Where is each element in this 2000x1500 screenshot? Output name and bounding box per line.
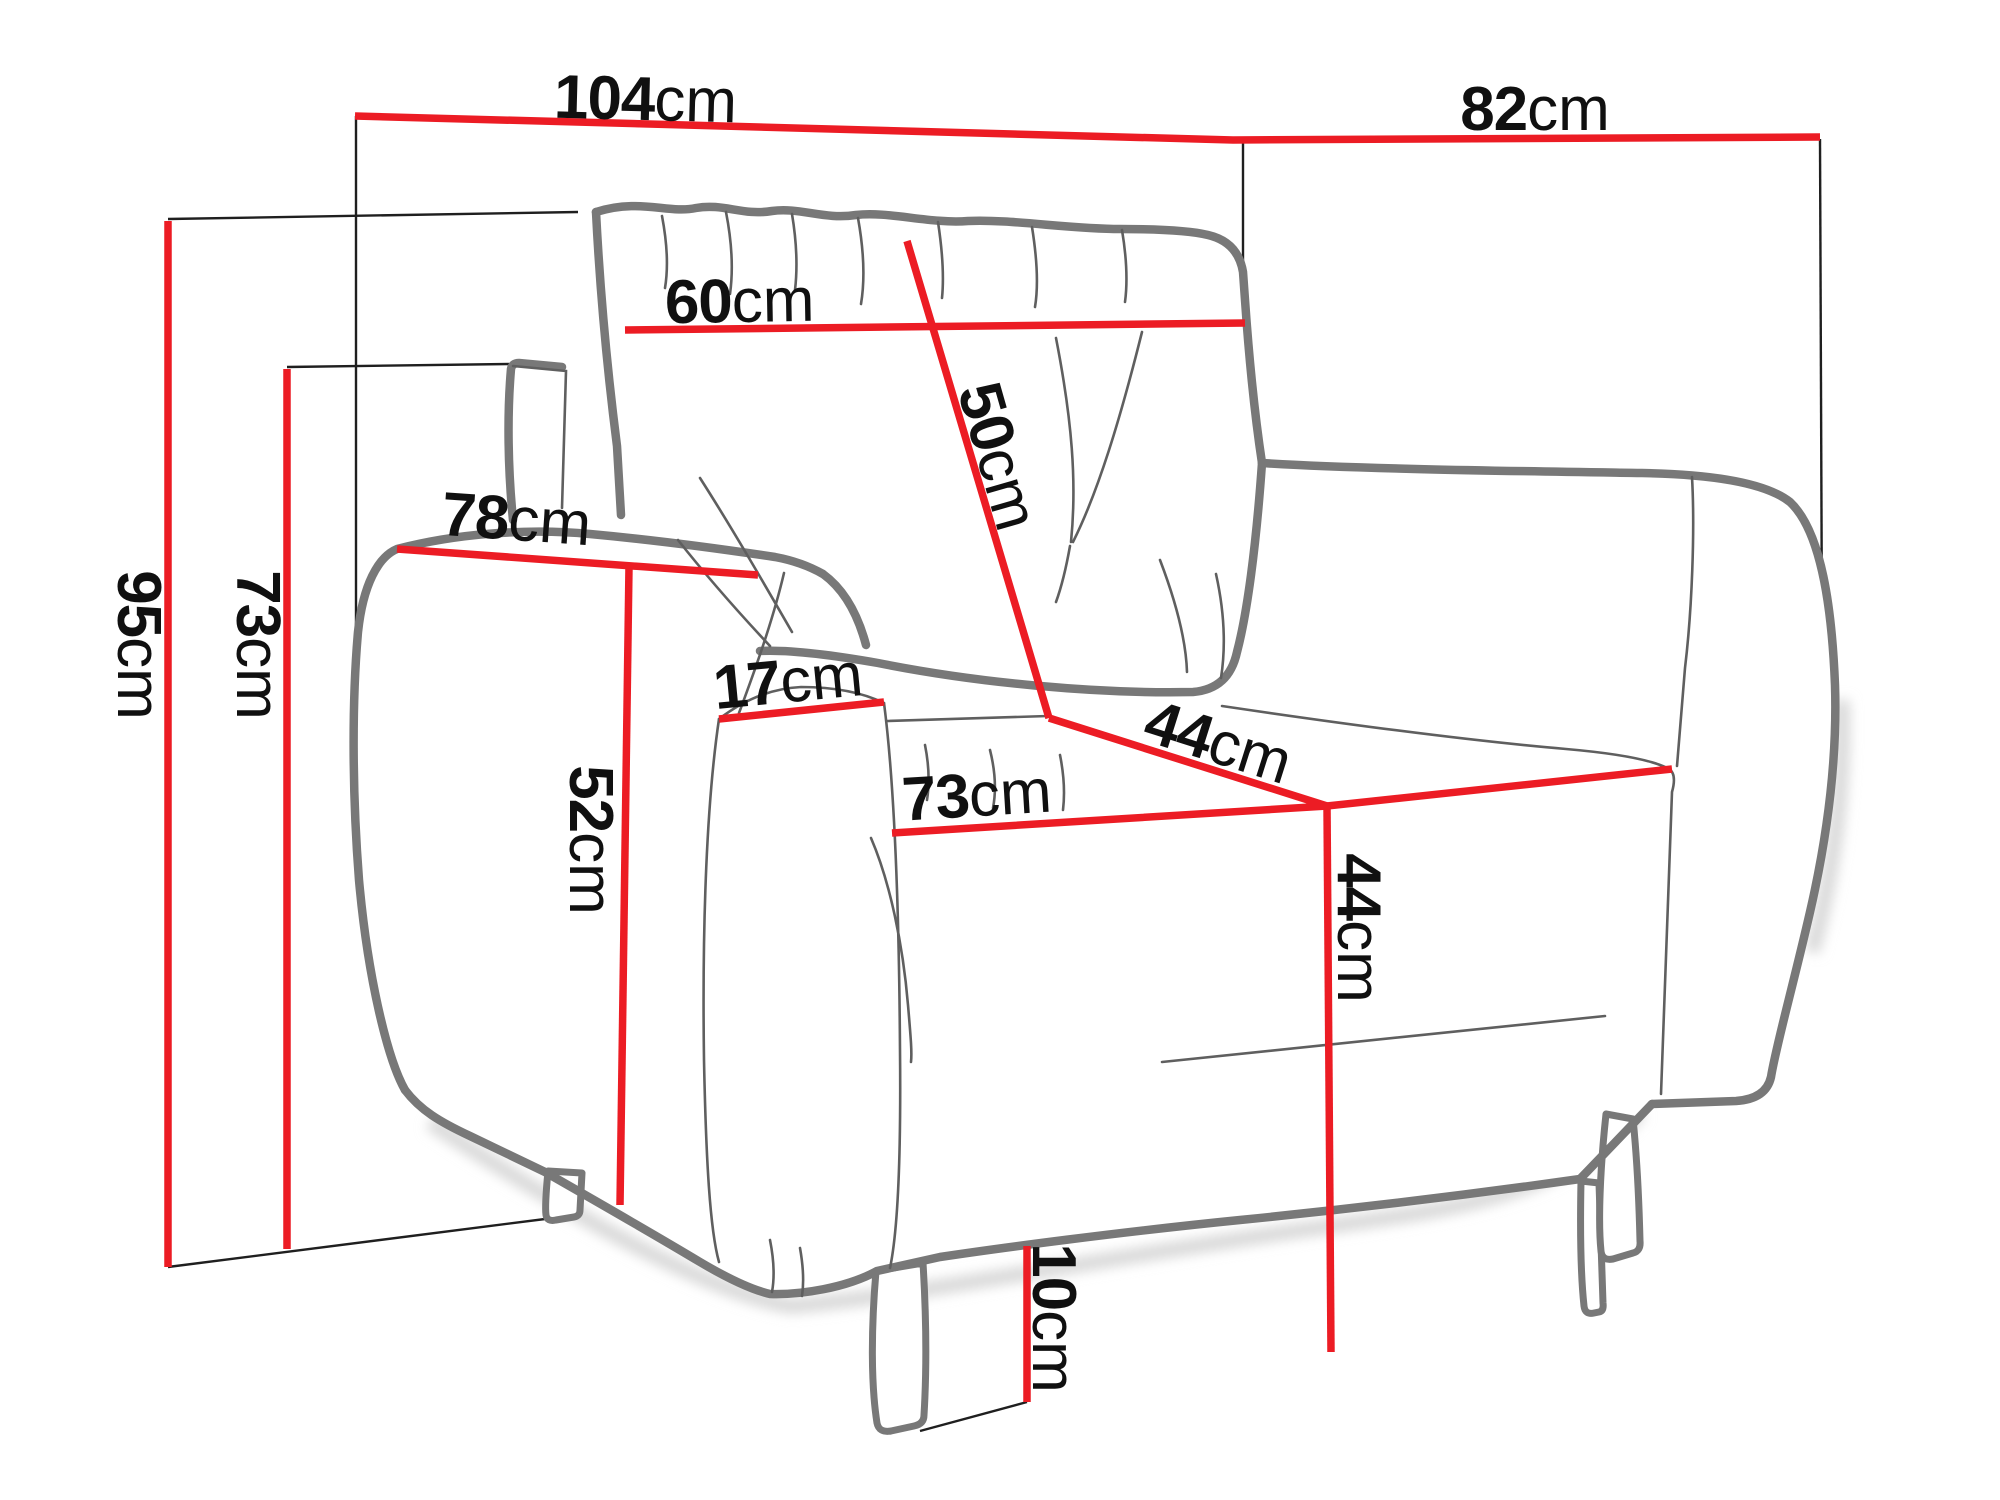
leg-front-left	[872, 1263, 925, 1431]
label-overall-depth: 82cm	[1460, 75, 1610, 144]
label-seat-depth: 73cm	[900, 757, 1054, 835]
label-seat-height: 44cm	[1324, 853, 1393, 1003]
label-overall-height: 95cm	[104, 570, 173, 720]
extension-line-floor	[168, 1218, 553, 1267]
label-armrest-length: 78cm	[439, 480, 593, 559]
label-back-cushion-width: 60cm	[664, 266, 815, 338]
armchair-dimension-diagram: 104cm 82cm 60cm 50cm 78cm 17cm 95cm 73cm…	[0, 0, 2000, 1500]
label-leg-height: 10cm	[1019, 1243, 1088, 1393]
extension-line-overall-height-top	[168, 212, 578, 219]
extension-line-leg-floor	[920, 1402, 1027, 1431]
label-overall-width: 104cm	[553, 63, 738, 137]
label-armrest-width: 17cm	[710, 640, 866, 723]
label-armrest-height: 73cm	[223, 570, 292, 720]
label-armrest-side-height: 52cm	[556, 765, 625, 915]
extension-line-armrest-height-top	[287, 364, 509, 367]
